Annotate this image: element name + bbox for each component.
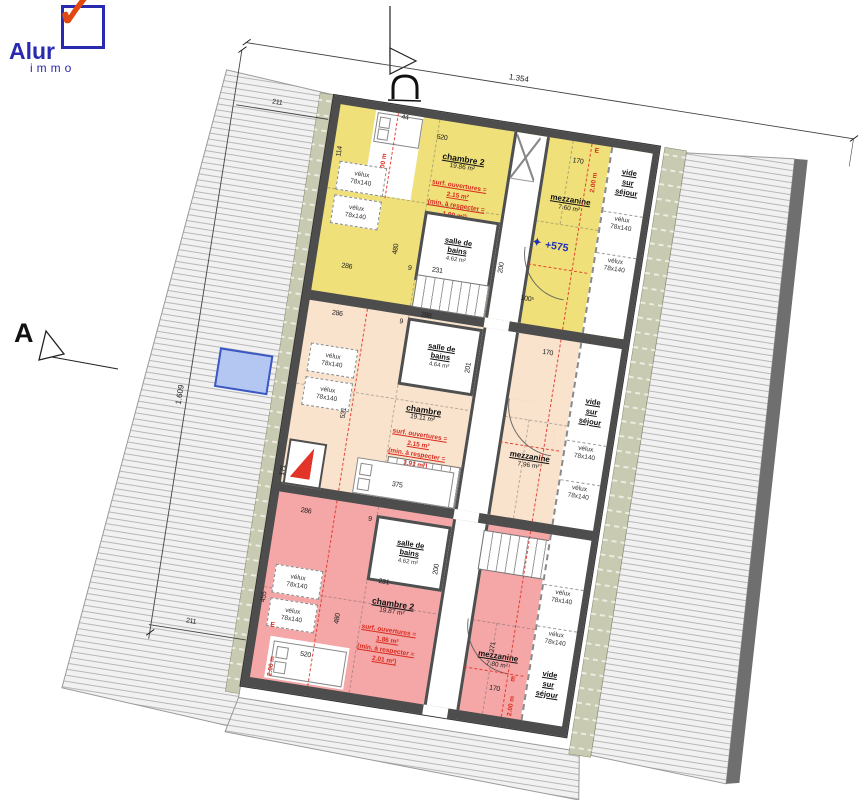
velux-label: vélux 78x140: [541, 584, 584, 609]
velux-window: vélux78x140: [306, 342, 358, 378]
velux-window: vélux78x140: [330, 194, 382, 230]
velux-label: vélux 78x140: [594, 252, 637, 277]
unit-bottom: salle de bains 4.62 m² vélux78x140 vélux…: [250, 491, 590, 726]
velux-label: vélux 78x140: [564, 440, 607, 465]
room-bath: salle de bains 4.64 m²: [397, 317, 483, 396]
room-mezzanine: mezzanine 7.60 m²: [531, 189, 609, 217]
unit-top: 2.00 m chambre 2 19.86 m² surf. ouvertur…: [311, 104, 651, 339]
dim-upper-left: 211: [272, 98, 283, 107]
height-mark: E: [594, 147, 600, 155]
velux-label: vélux 78x140: [558, 479, 601, 504]
unit-middle: salle de bains 4.64 m² vélux78x140 vélux…: [281, 300, 620, 531]
dim-lower-left: 211: [185, 617, 196, 626]
velux-label: vélux 78x140: [600, 211, 643, 236]
level-star-icon: ✦: [530, 236, 543, 251]
velux-label: vélux 78x140: [535, 625, 578, 650]
velux-window: vélux78x140: [335, 161, 387, 197]
roof-velux-blue: [215, 348, 272, 394]
stairs: [478, 530, 551, 580]
floor-plan-canvas: ✓ Alur immo A: [0, 0, 862, 800]
velux-window: vélux78x140: [271, 564, 323, 600]
